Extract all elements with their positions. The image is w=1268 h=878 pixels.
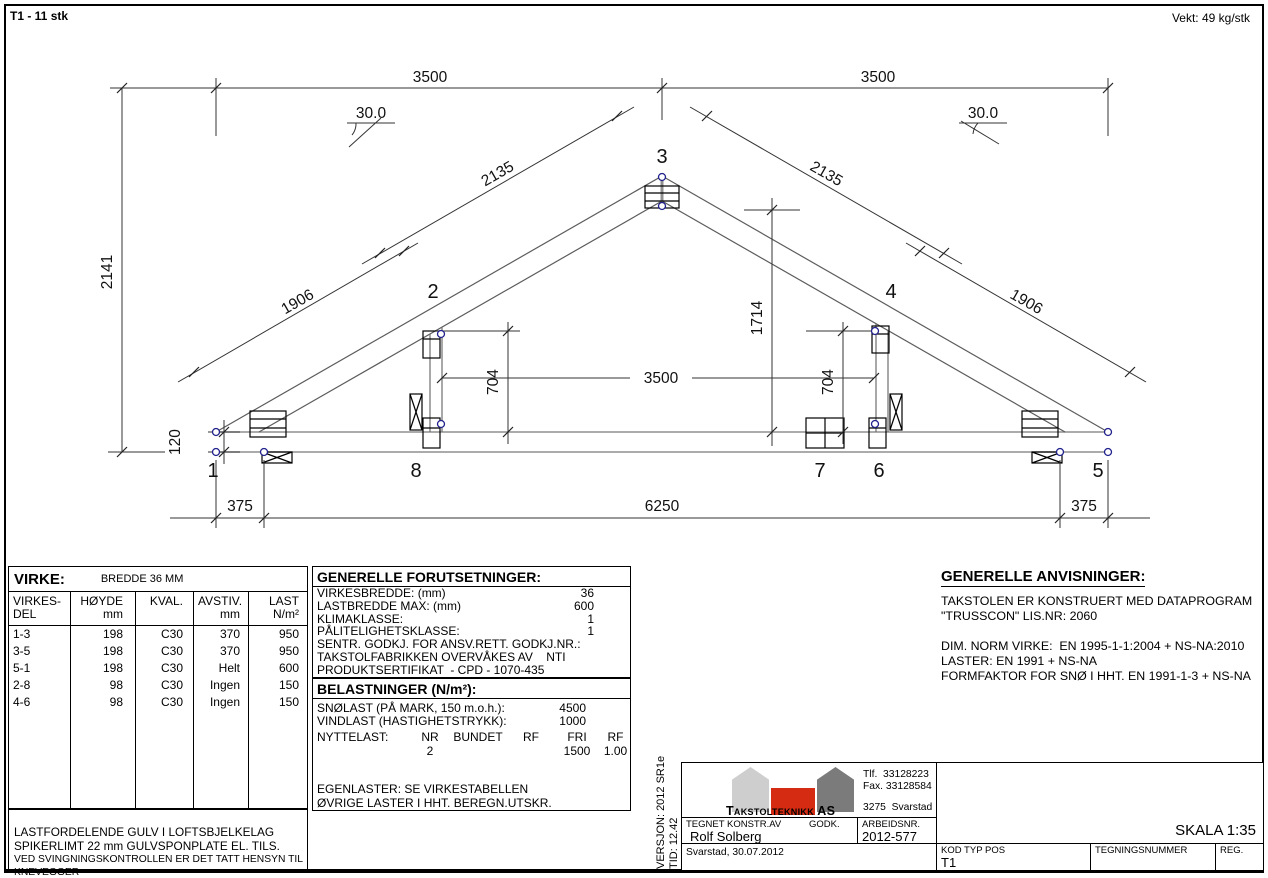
virke-table: VIRKE: BREDDE 36 MM VIRKES-DEL HØYDEmm K… [8, 566, 308, 809]
tegnet-cell: TEGNET KONSTR.AV GODK. Rolf Solberg [682, 818, 858, 843]
joint-pins [213, 174, 1112, 456]
belastninger-box: BELASTNINGER (N/m²): SNØLAST (PÅ MARK, 1… [312, 678, 631, 811]
forut-row: PRODUKTSERTIFIKAT - CPD - 1070-435 [313, 664, 630, 677]
node-label-4: 4 [885, 281, 896, 303]
node-label-2: 2 [427, 281, 438, 303]
virke-filler [9, 711, 71, 809]
virke-cell: 5-1 [9, 660, 71, 677]
node-label-1: 1 [207, 460, 218, 482]
virke-title-row: VIRKE: BREDDE 36 MM [9, 567, 307, 592]
version-label: VERSJON: 2012 SR1e [655, 756, 667, 869]
fax-label: Fax. 33128584 [863, 781, 932, 793]
forut-row: VIRKESBREDDE: (mm)36 [313, 587, 630, 600]
notes-box: LASTFORDELENDE GULV I LOFTSBJELKELAG SPI… [8, 809, 308, 870]
dim-3500-mid: 3500 [644, 370, 679, 387]
reg-label: REG. [1220, 845, 1243, 856]
virke-cell: 198 [71, 643, 136, 660]
virke-cell: C30 [136, 677, 194, 694]
titleblock-drawnby-row: TEGNET KONSTR.AV GODK. Rolf Solberg ARBE… [681, 817, 938, 844]
virke-cell: 370 [194, 626, 249, 643]
virke-filler [136, 711, 194, 809]
phone-label: Tlf. 33128223 [863, 769, 929, 781]
virke-cell: 98 [71, 694, 136, 711]
dim-3500-top-left: 3500 [413, 69, 448, 86]
titleblock-logo-cell: Takstolteknikk AS Tlf. 33128223 Fax. 331… [681, 762, 938, 819]
place-date: Svarstad, 30.07.2012 [686, 847, 784, 858]
belast-row: VINDLAST (HASTIGHETSTRYKK):1000 [313, 715, 630, 728]
tegningsnummer-cell: TEGNINGSNUMMER [1091, 844, 1216, 870]
forutsetninger-box: GENERELLE FORUTSETNINGER: VIRKESBREDDE: … [312, 566, 631, 678]
virke-col-header: AVSTIV.mm [194, 592, 249, 626]
godk-label: GODK. [809, 819, 840, 830]
anvisninger-line [941, 624, 1263, 639]
virke-col-header: LASTN/m² [249, 592, 307, 626]
belast-footer: EGENLASTER: SE VIRKESTABELLEN ØVRIGE LAS… [313, 782, 630, 810]
dim-6250: 6250 [645, 498, 680, 515]
dim-2141: 2141 [99, 255, 116, 289]
virke-cell: C30 [136, 660, 194, 677]
titleblock-scale-cell: SKALA 1:35 [936, 762, 1264, 844]
virke-cell: 150 [249, 694, 307, 711]
virke-cell: 2-8 [9, 677, 71, 694]
truss-drawing: 3500 3500 30.0 30.0 2135 2135 1906 1906 … [0, 0, 1268, 560]
dimension-ticks [117, 83, 1135, 523]
virke-cell: Helt [194, 660, 249, 677]
time-label: TID: 12.42 [668, 818, 680, 869]
virke-col-header: KVAL. [136, 592, 194, 626]
dim-1906-right: 1906 [1007, 286, 1045, 318]
anvisninger-line: TAKSTOLEN ER KONSTRUERT MED DATAPROGRAM [941, 594, 1263, 609]
titleblock-date-row: Svarstad, 30.07.2012 [681, 843, 938, 871]
virke-cell: 4-6 [9, 694, 71, 711]
dim-3500-top-right: 3500 [861, 69, 896, 86]
virke-subtitle: BREDDE 36 MM [101, 573, 184, 585]
virke-cell: Ingen [194, 694, 249, 711]
note-line: SPIKERLIMT 22 mm GULVSPONPLATE EL. TILS. [14, 839, 307, 853]
dim-375-left: 375 [227, 498, 253, 515]
virke-cell: 150 [249, 677, 307, 694]
dim-375-right: 375 [1071, 498, 1097, 515]
anvisninger-title: GENERELLE ANVISNINGER: [941, 568, 1145, 587]
dim-704-right: 704 [820, 369, 837, 395]
dim-704-left: 704 [485, 369, 502, 395]
drawing-sheet: T1 - 11 stk Vekt: 49 kg/stk [0, 0, 1268, 878]
forut-row: LASTBREDDE MAX: (mm)600 [313, 600, 630, 613]
forut-row: TAKSTOLFABRIKKEN OVERVÅKES AV NTI [313, 651, 630, 664]
company-name: Takstolteknikk AS [726, 804, 835, 818]
virke-cell: 950 [249, 626, 307, 643]
virke-col-header: VIRKES-DEL [9, 592, 71, 626]
anvisninger-line: LASTER: EN 1991 + NS-NA [941, 654, 1263, 669]
node-label-8: 8 [410, 460, 421, 482]
virke-cell: 198 [71, 660, 136, 677]
virke-grid: VIRKES-DEL HØYDEmm KVAL. AVSTIV.mm LASTN… [9, 592, 307, 809]
virke-title: VIRKE: [9, 571, 65, 588]
tegningsnummer-label: TEGNINGSNUMMER [1095, 845, 1187, 856]
virke-cell: 600 [249, 660, 307, 677]
virke-cell: 950 [249, 643, 307, 660]
dim-1906-left: 1906 [279, 286, 317, 318]
node-label-3: 3 [656, 146, 667, 168]
city-label: 3275 Svarstad [863, 802, 932, 814]
virke-cell: 198 [71, 626, 136, 643]
anvisninger-block: GENERELLE ANVISNINGER: TAKSTOLEN ER KONS… [941, 568, 1263, 684]
anvisninger-line: "TRUSSCON" LIS.NR: 2060 [941, 609, 1263, 624]
truss-members [216, 176, 1108, 452]
virke-cell: 3-5 [9, 643, 71, 660]
dimension-lines [108, 78, 1150, 528]
virke-cell: C30 [136, 626, 194, 643]
anvisninger-line: DIM. NORM VIRKE: EN 1995-1-1:2004 + NS-N… [941, 639, 1263, 654]
arbeidsnr-cell: ARBEIDSNR. 2012-577 [858, 818, 937, 843]
arbeidsnr-value: 2012-577 [862, 829, 917, 844]
dim-120: 120 [167, 429, 184, 455]
reg-cell: REG. [1216, 844, 1263, 870]
node-label-7: 7 [814, 460, 825, 482]
virke-filler [194, 711, 249, 809]
kod-value: T1 [941, 855, 956, 870]
titleblock-bottom-row: KOD TYP POS T1 TEGNINGSNUMMER REG. [936, 843, 1264, 871]
virke-cell: 98 [71, 677, 136, 694]
virke-cell: 370 [194, 643, 249, 660]
dimension-labels: 3500 3500 30.0 30.0 2135 2135 1906 1906 … [99, 69, 1097, 515]
virke-filler [249, 711, 307, 809]
nail-plates [250, 186, 1062, 463]
note-line: LASTFORDELENDE GULV I LOFTSBJELKELAG [14, 825, 307, 839]
node-label-6: 6 [873, 460, 884, 482]
nyttelast-grid: NYTTELAST: NR BUNDET RF FRI RF 2 1500 1.… [313, 730, 630, 758]
virke-cell: 1-3 [9, 626, 71, 643]
virke-filler [71, 711, 136, 809]
dim-angle-left: 30.0 [356, 105, 387, 122]
virke-cell: C30 [136, 694, 194, 711]
belast-row: SNØLAST (PÅ MARK, 150 m.o.h.):4500 [313, 702, 630, 715]
note-line: VED SVINGNINGSKONTROLLEN ER DET TATT HEN… [14, 853, 307, 878]
anvisninger-line: FORMFAKTOR FOR SNØ I HHT. EN 1991-1-3 + … [941, 669, 1263, 684]
virke-col-header: HØYDEmm [71, 592, 136, 626]
belastninger-title: BELASTNINGER (N/m²): [313, 679, 630, 699]
virke-cell: Ingen [194, 677, 249, 694]
forutsetninger-title: GENERELLE FORUTSETNINGER: [313, 567, 630, 587]
kod-cell: KOD TYP POS T1 [937, 844, 1091, 870]
scale-label: SKALA 1:35 [1175, 822, 1256, 839]
dim-1714: 1714 [749, 300, 766, 335]
node-label-5: 5 [1092, 460, 1103, 482]
dim-angle-right: 30.0 [968, 105, 999, 122]
virke-cell: C30 [136, 643, 194, 660]
tegnet-value: Rolf Solberg [690, 829, 762, 844]
